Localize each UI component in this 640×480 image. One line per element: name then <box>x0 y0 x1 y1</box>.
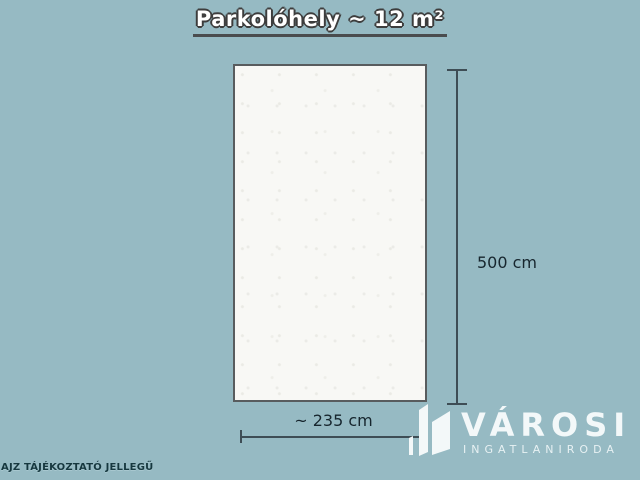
disclaimer-text: AJZ TÁJÉKOZTATÓ JELLEGŰ <box>1 462 153 473</box>
height-dimension-cap-top <box>447 69 467 71</box>
height-dimension-label: 500 cm <box>477 253 537 272</box>
buildings-icon <box>406 401 456 463</box>
width-dimension-label: ~ 235 cm <box>240 411 427 430</box>
brand-name: VÁROSI <box>461 406 631 444</box>
floor-plan-page: Parkolóhely ~ 12 m² 500 cm ~ 235 cm VÁRO… <box>0 0 640 480</box>
parking-space-plan <box>233 64 427 402</box>
brand-subtitle: INGATLANIRODA <box>463 443 619 456</box>
height-dimension-line <box>456 70 458 404</box>
width-dimension-cap-left <box>240 430 242 443</box>
page-title: Parkolóhely ~ 12 m² <box>193 7 447 37</box>
width-dimension-line <box>240 436 427 438</box>
page-title-row: Parkolóhely ~ 12 m² <box>0 7 640 37</box>
